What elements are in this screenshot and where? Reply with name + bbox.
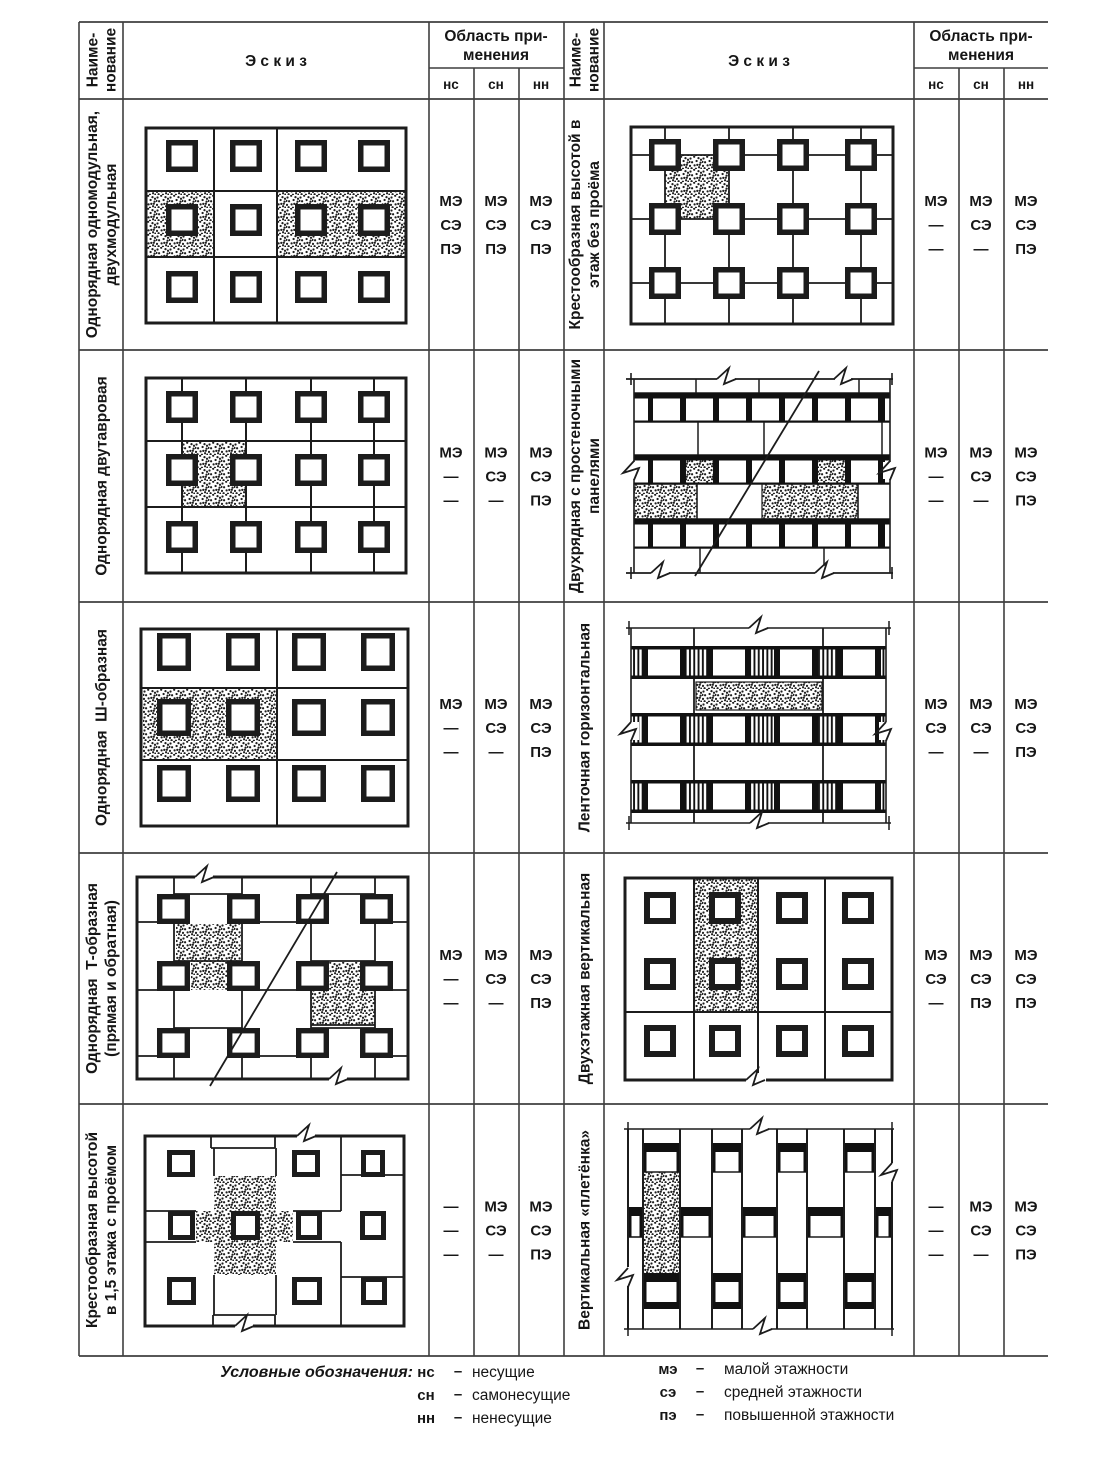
svg-text:СЭ: СЭ (485, 720, 507, 737)
svg-text:МЭ: МЭ (484, 193, 507, 210)
svg-text:нс: нс (417, 1364, 434, 1381)
svg-text:—: — (929, 241, 944, 258)
svg-text:СЭ: СЭ (1015, 1223, 1037, 1240)
svg-text:МЭ: МЭ (529, 445, 552, 462)
svg-text:—: — (929, 1223, 944, 1240)
svg-text:СЭ: СЭ (970, 1223, 992, 1240)
svg-text:–: – (696, 1383, 704, 1400)
svg-text:нн: нн (1018, 77, 1034, 92)
svg-text:—: — (489, 493, 504, 510)
svg-text:МЭ: МЭ (1014, 1199, 1037, 1216)
svg-text:—: — (489, 744, 504, 761)
svg-text:МЭ: МЭ (484, 947, 507, 964)
svg-text:МЭ: МЭ (484, 696, 507, 713)
svg-text:Однорядная Т-образная: Однорядная Т-образная (84, 883, 101, 1074)
svg-text:сн: сн (417, 1387, 434, 1404)
svg-text:самонесущие: самонесущие (472, 1387, 570, 1404)
svg-text:—: — (974, 744, 989, 761)
svg-text:СЭ: СЭ (440, 217, 462, 234)
svg-text:Наиме-: Наиме- (85, 33, 102, 88)
svg-text:МЭ: МЭ (484, 1199, 507, 1216)
svg-text:—: — (929, 995, 944, 1012)
svg-text:СЭ: СЭ (1015, 971, 1037, 988)
svg-text:СЭ: СЭ (970, 971, 992, 988)
svg-text:СЭ: СЭ (485, 1223, 507, 1240)
svg-text:—: — (444, 493, 459, 510)
svg-text:Однорядная Ш-образная: Однорядная Ш-образная (94, 629, 111, 826)
svg-text:СЭ: СЭ (925, 720, 947, 737)
svg-text:Э с к и з: Э с к и з (728, 53, 790, 70)
svg-text:—: — (444, 1199, 459, 1216)
svg-text:—: — (444, 971, 459, 988)
svg-text:–: – (696, 1406, 704, 1423)
svg-text:–: – (454, 1409, 462, 1426)
svg-text:СЭ: СЭ (530, 217, 552, 234)
svg-text:средней этажности: средней этажности (724, 1384, 862, 1401)
svg-text:Двухэтажная вертикальная: Двухэтажная вертикальная (577, 873, 594, 1084)
svg-text:—: — (444, 469, 459, 486)
svg-text:МЭ: МЭ (529, 696, 552, 713)
svg-text:малой этажности: малой этажности (724, 1361, 848, 1378)
svg-text:нование: нование (586, 27, 603, 92)
svg-text:МЭ: МЭ (924, 193, 947, 210)
svg-text:ПЭ: ПЭ (1015, 995, 1037, 1012)
svg-text:Однорядная двутавровая: Однорядная двутавровая (94, 376, 111, 575)
svg-text:МЭ: МЭ (439, 947, 462, 964)
svg-text:—: — (929, 217, 944, 234)
svg-text:ПЭ: ПЭ (530, 995, 552, 1012)
svg-text:—: — (444, 720, 459, 737)
svg-text:сн: сн (973, 77, 989, 92)
svg-text:Вертикальная «плетёнка»: Вертикальная «плетёнка» (577, 1130, 594, 1330)
svg-text:СЭ: СЭ (1015, 720, 1037, 737)
svg-text:МЭ: МЭ (1014, 696, 1037, 713)
svg-text:—: — (444, 1247, 459, 1264)
svg-text:—: — (974, 1247, 989, 1264)
svg-text:ПЭ: ПЭ (530, 493, 552, 510)
svg-text:ПЭ: ПЭ (1015, 744, 1037, 761)
svg-text:СЭ: СЭ (530, 971, 552, 988)
svg-text:ПЭ: ПЭ (485, 241, 507, 258)
svg-text:нс: нс (443, 77, 459, 92)
svg-text:—: — (929, 1247, 944, 1264)
svg-text:МЭ: МЭ (1014, 445, 1037, 462)
svg-text:—: — (489, 995, 504, 1012)
svg-text:мэ: мэ (658, 1361, 677, 1378)
svg-text:Крестообразная высотой: Крестообразная высотой (84, 1132, 101, 1328)
svg-text:—: — (929, 1199, 944, 1216)
svg-text:СЭ: СЭ (925, 971, 947, 988)
svg-text:(прямая и обратная): (прямая и обратная) (103, 900, 120, 1057)
svg-text:Э с к и з: Э с к и з (245, 53, 307, 70)
svg-text:ПЭ: ПЭ (530, 241, 552, 258)
svg-text:Двухрядная с простеночными: Двухрядная с простеночными (567, 359, 584, 593)
svg-text:—: — (489, 1247, 504, 1264)
svg-text:–: – (696, 1360, 704, 1377)
svg-text:СЭ: СЭ (530, 720, 552, 737)
svg-text:МЭ: МЭ (439, 193, 462, 210)
svg-text:МЭ: МЭ (529, 1199, 552, 1216)
svg-text:ПЭ: ПЭ (440, 241, 462, 258)
svg-text:панелями: панелями (586, 438, 603, 514)
svg-text:ПЭ: ПЭ (970, 995, 992, 1012)
svg-text:МЭ: МЭ (439, 696, 462, 713)
svg-text:ПЭ: ПЭ (1015, 241, 1037, 258)
svg-text:сн: сн (488, 77, 504, 92)
svg-text:этаж без проёма: этаж без проёма (586, 161, 603, 288)
svg-text:МЭ: МЭ (529, 193, 552, 210)
svg-text:—: — (929, 469, 944, 486)
svg-text:нн: нн (417, 1410, 435, 1427)
svg-text:ПЭ: ПЭ (1015, 493, 1037, 510)
svg-text:Область при-: Область при- (929, 28, 1032, 45)
svg-text:Однорядная одномодульная,: Однорядная одномодульная, (84, 111, 101, 338)
svg-text:СЭ: СЭ (1015, 217, 1037, 234)
svg-text:пэ: пэ (659, 1407, 676, 1424)
svg-text:нование: нование (103, 27, 120, 92)
svg-text:ПЭ: ПЭ (1015, 1247, 1037, 1264)
svg-text:—: — (444, 744, 459, 761)
svg-text:СЭ: СЭ (530, 1223, 552, 1240)
svg-text:Область при-: Область при- (444, 28, 547, 45)
svg-text:МЭ: МЭ (1014, 947, 1037, 964)
svg-text:МЭ: МЭ (969, 445, 992, 462)
svg-text:несущие: несущие (472, 1364, 535, 1381)
svg-text:СЭ: СЭ (1015, 469, 1037, 486)
svg-text:СЭ: СЭ (485, 469, 507, 486)
svg-text:повышенной этажности: повышенной этажности (724, 1407, 894, 1424)
svg-text:ПЭ: ПЭ (530, 1247, 552, 1264)
svg-text:сэ: сэ (660, 1384, 677, 1401)
svg-text:ненесущие: ненесущие (472, 1410, 552, 1427)
svg-text:менения: менения (463, 47, 529, 64)
svg-text:—: — (929, 744, 944, 761)
svg-text:Условные обозначения:: Условные обозначения: (220, 1364, 413, 1381)
svg-text:МЭ: МЭ (924, 947, 947, 964)
svg-text:СЭ: СЭ (530, 469, 552, 486)
svg-text:МЭ: МЭ (969, 1199, 992, 1216)
svg-text:–: – (454, 1363, 462, 1380)
svg-text:Ленточная горизонтальная: Ленточная горизонтальная (577, 623, 594, 832)
svg-text:СЭ: СЭ (970, 720, 992, 737)
svg-text:Наиме-: Наиме- (568, 33, 585, 88)
svg-text:МЭ: МЭ (1014, 193, 1037, 210)
svg-text:МЭ: МЭ (969, 947, 992, 964)
svg-text:—: — (444, 995, 459, 1012)
svg-text:СЭ: СЭ (485, 971, 507, 988)
svg-text:МЭ: МЭ (924, 696, 947, 713)
svg-text:—: — (444, 1223, 459, 1240)
svg-text:—: — (974, 493, 989, 510)
svg-text:МЭ: МЭ (439, 445, 462, 462)
svg-text:—: — (929, 493, 944, 510)
svg-text:Крестообразная высотой в: Крестообразная высотой в (567, 120, 584, 330)
svg-text:—: — (974, 241, 989, 258)
svg-text:двухмодульная: двухмодульная (103, 164, 120, 286)
svg-text:в 1,5 этажа с проёмом: в 1,5 этажа с проёмом (103, 1145, 120, 1315)
svg-text:СЭ: СЭ (970, 469, 992, 486)
svg-text:МЭ: МЭ (529, 947, 552, 964)
svg-text:нн: нн (533, 77, 549, 92)
svg-text:СЭ: СЭ (485, 217, 507, 234)
svg-text:ПЭ: ПЭ (530, 744, 552, 761)
svg-text:менения: менения (948, 47, 1014, 64)
svg-text:–: – (454, 1386, 462, 1403)
svg-text:нс: нс (928, 77, 944, 92)
svg-text:МЭ: МЭ (969, 193, 992, 210)
svg-text:СЭ: СЭ (970, 217, 992, 234)
svg-text:МЭ: МЭ (484, 445, 507, 462)
svg-text:МЭ: МЭ (969, 696, 992, 713)
svg-text:МЭ: МЭ (924, 445, 947, 462)
